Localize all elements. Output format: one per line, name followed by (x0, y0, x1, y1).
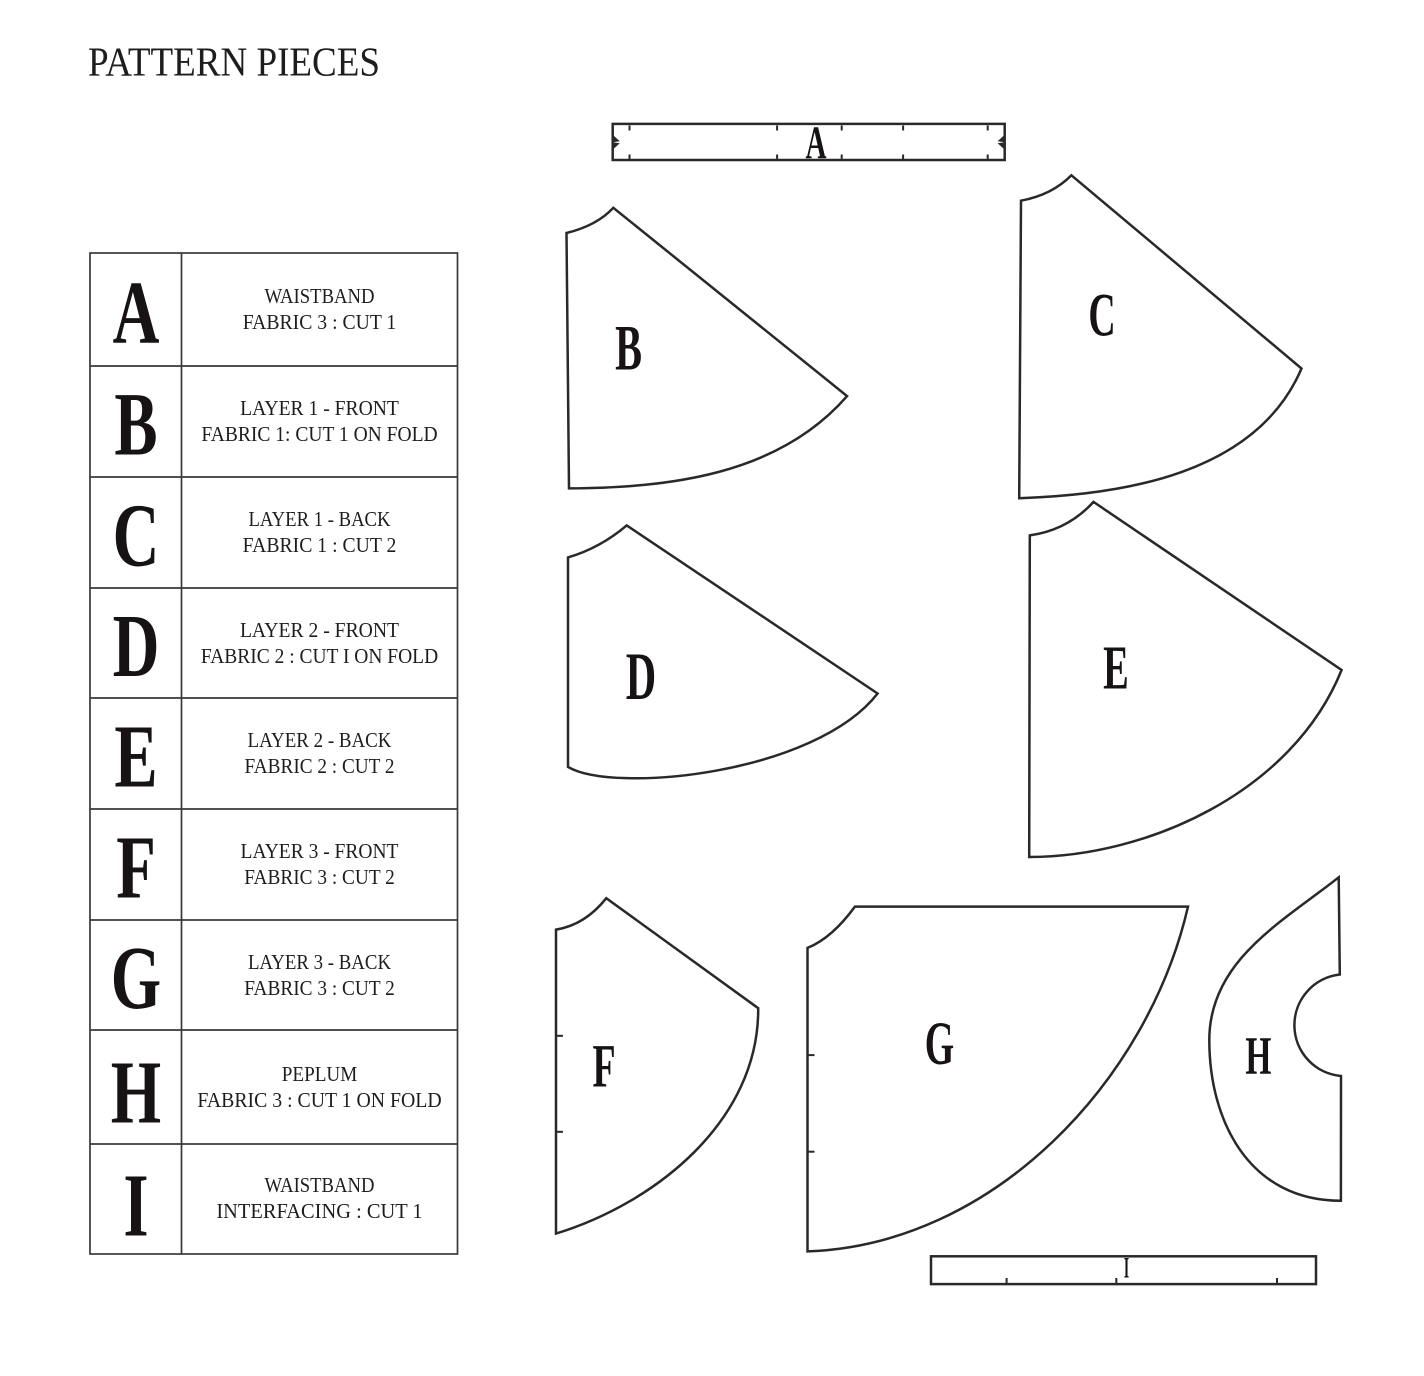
svg-text:WAISTBAND: WAISTBAND (265, 284, 375, 308)
svg-text:A: A (805, 117, 826, 169)
svg-text:E: E (114, 706, 157, 806)
svg-text:G: G (925, 1010, 954, 1077)
svg-text:I: I (1124, 1252, 1129, 1286)
svg-text:INTERFACING : CUT 1: INTERFACING : CUT 1 (216, 1199, 422, 1223)
svg-text:LAYER 2 - FRONT: LAYER 2 - FRONT (240, 618, 399, 642)
svg-text:FABRIC 2 : CUT I ON FOLD: FABRIC 2 : CUT I ON FOLD (201, 644, 438, 668)
svg-text:PATTERN PIECES: PATTERN PIECES (88, 39, 380, 85)
svg-text:PEPLUM: PEPLUM (282, 1062, 358, 1086)
svg-text:LAYER 1 - BACK: LAYER 1 - BACK (249, 507, 391, 531)
svg-text:LAYER 1 - FRONT: LAYER 1 - FRONT (240, 396, 399, 420)
svg-text:LAYER 2 - BACK: LAYER 2 - BACK (248, 728, 392, 752)
svg-text:D: D (113, 596, 160, 696)
svg-text:FABRIC 3 : CUT 2: FABRIC 3 : CUT 2 (244, 976, 395, 1000)
svg-text:FABRIC 1 : CUT 2: FABRIC 1 : CUT 2 (243, 533, 397, 557)
svg-text:LAYER 3 - FRONT: LAYER 3 - FRONT (241, 839, 399, 863)
svg-text:FABRIC 3 : CUT 1 ON FOLD: FABRIC 3 : CUT 1 ON FOLD (197, 1088, 441, 1112)
svg-text:B: B (114, 374, 157, 474)
svg-text:F: F (116, 817, 156, 917)
svg-text:F: F (592, 1033, 615, 1100)
svg-text:FABRIC 2 : CUT 2: FABRIC 2 : CUT 2 (245, 754, 395, 778)
svg-text:H: H (1245, 1026, 1271, 1086)
svg-text:FABRIC 3 : CUT 1: FABRIC 3 : CUT 1 (243, 310, 397, 334)
svg-text:FABRIC 1: CUT 1 ON FOLD: FABRIC 1: CUT 1 ON FOLD (201, 422, 437, 446)
svg-text:FABRIC 3 : CUT 2: FABRIC 3 : CUT 2 (244, 865, 395, 889)
svg-text:B: B (615, 312, 642, 384)
svg-text:A: A (113, 262, 160, 362)
svg-text:D: D (626, 640, 656, 715)
svg-text:I: I (123, 1155, 148, 1255)
svg-text:G: G (111, 928, 161, 1028)
svg-text:C: C (113, 485, 160, 585)
svg-text:WAISTBAND: WAISTBAND (265, 1173, 375, 1197)
svg-text:LAYER 3 - BACK: LAYER 3 - BACK (248, 950, 391, 974)
svg-text:C: C (1088, 281, 1115, 348)
svg-text:H: H (111, 1042, 161, 1142)
svg-text:E: E (1103, 634, 1129, 703)
